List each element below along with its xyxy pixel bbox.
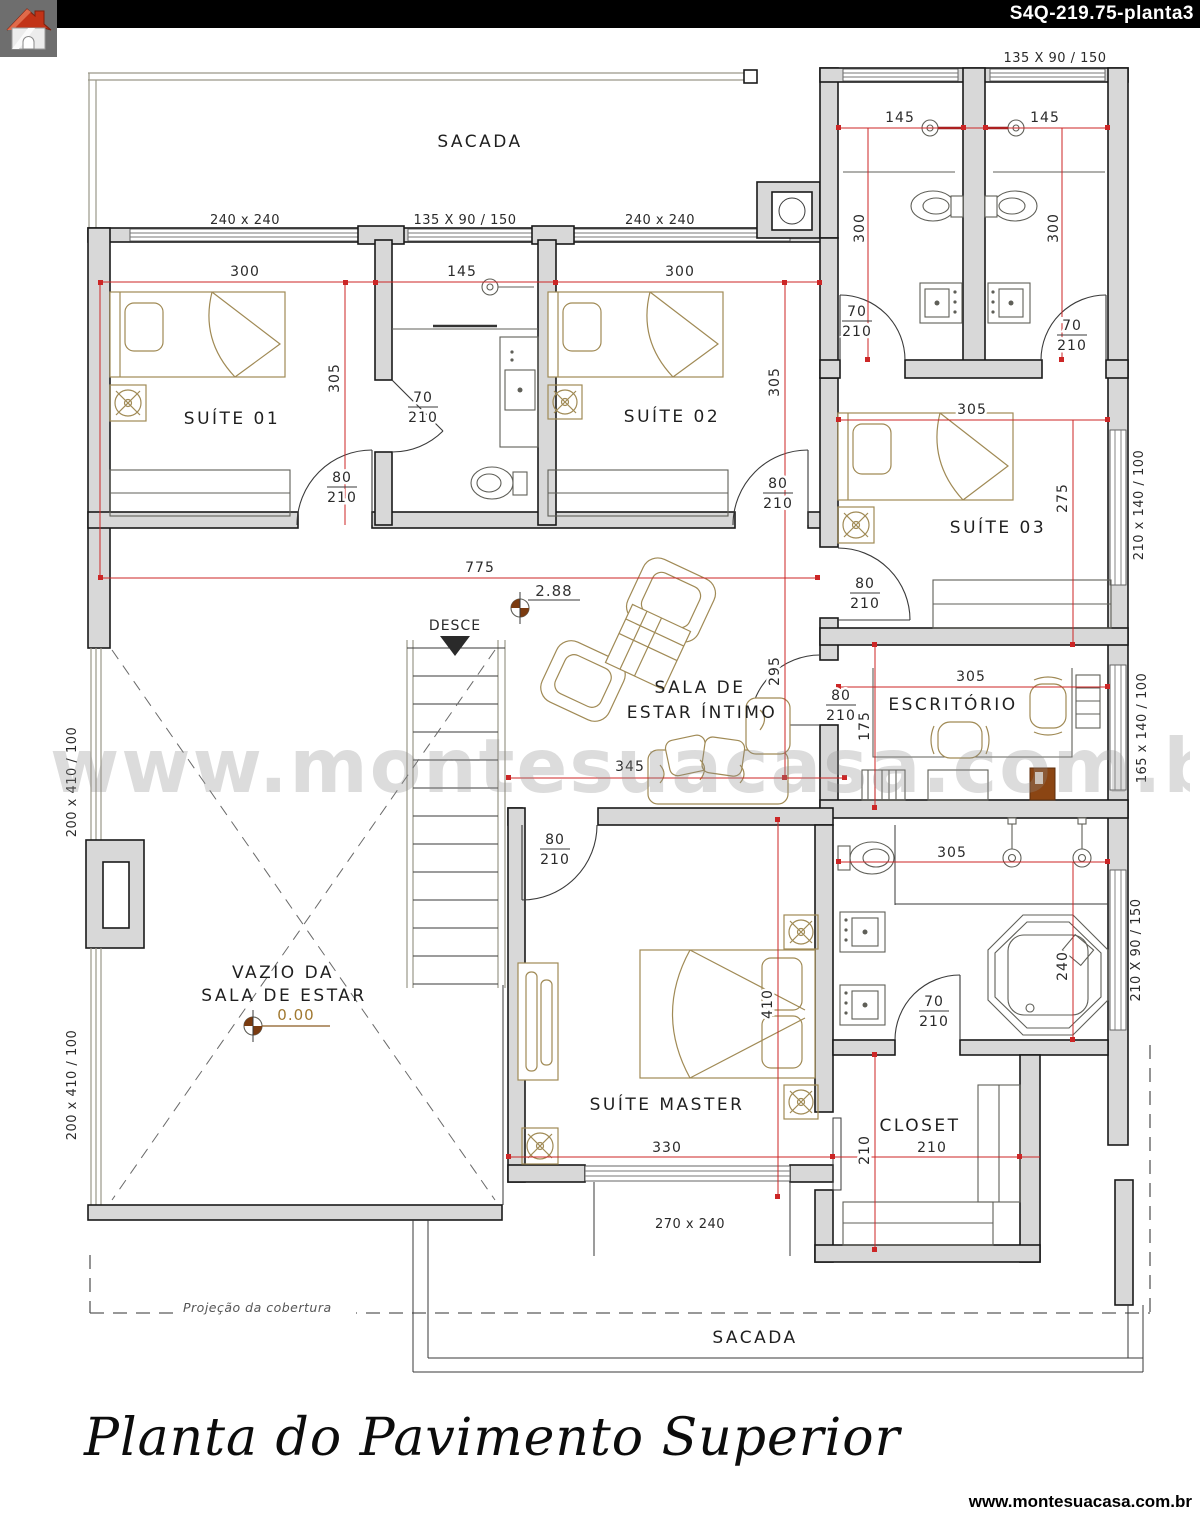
dim-closet-depth: 210 [857,1135,873,1165]
window-spec-wc-top: 135 X 90 / 150 [1004,51,1107,66]
svg-text:80: 80 [545,832,565,848]
lower-level-value: 0.00 [277,1006,314,1024]
room-label-balcony-top: SACADA [437,132,522,152]
svg-text:210: 210 [850,596,880,612]
dim-wc2-width: 145 [1030,110,1060,126]
svg-text:70: 70 [413,390,433,406]
room-label-void-1: VAZIO DA [232,963,334,983]
dim-wc1-width: 145 [885,110,915,126]
upper-level-value: 2.88 [535,582,572,600]
door-label-suite3: 80210 [850,576,880,612]
dim-suite3-depth: 275 [1055,483,1071,513]
window-spec-top-right: 240 x 240 [625,213,695,228]
roof-projection-label: Projeção da cobertura [183,1300,332,1315]
door-label-suite2: 80210 [763,476,793,512]
level-marker-upper: 2.88 [511,582,580,624]
window-spec-master-bath: 210 X 90 / 150 [1129,899,1144,1002]
svg-text:70: 70 [1062,318,1082,334]
room-label-suite2: SUÍTE 02 [624,405,720,427]
office-furniture [862,668,1100,800]
dim-suite2-width: 300 [665,264,695,280]
window-spec-suite3: 210 x 140 / 100 [1132,450,1147,561]
dim-master-width: 330 [652,1140,682,1156]
dim-closet-width: 210 [917,1140,947,1156]
dim-suite3-width: 305 [957,402,987,418]
dim-living-depth: 295 [767,656,783,686]
site-url[interactable]: www.montesuacasa.com.br [969,1492,1192,1512]
dim-suite2-depth: 305 [767,367,783,397]
svg-text:210: 210 [919,1014,949,1030]
svg-text:80: 80 [831,688,851,704]
room-label-suite1: SUÍTE 01 [184,407,280,429]
master-bath-fixtures [838,818,1108,1035]
window-spec-top-center: 135 X 90 / 150 [414,213,517,228]
dim-wc1-depth: 300 [852,213,868,243]
svg-text:210: 210 [1057,338,1087,354]
floor-plan-drawing: DESCE Projeção da cobertura [0,0,1200,1527]
level-marker-lower: 0.00 [244,1006,330,1042]
dim-hall-span: 775 [465,560,495,576]
stairs-down-arrow-icon [440,636,470,656]
window-spec-void-lower: 200 x 410 / 100 [65,1030,80,1141]
stairs: DESCE [407,618,505,988]
dim-office-depth: 175 [857,711,873,741]
dim-suite1-depth: 305 [327,363,343,393]
dim-wc2-depth: 300 [1046,213,1062,243]
master-wardrobe-icon [518,963,558,1080]
wc2-fixtures [985,120,1105,323]
room-label-office: ESCRITÓRIO [888,693,1017,715]
dim-master-bath-depth: 240 [1055,951,1071,981]
suite3-bed-icon [838,413,1013,500]
room-label-master: SUÍTE MASTER [590,1093,745,1115]
balcony-top-rail [88,70,757,230]
svg-text:70: 70 [847,304,867,320]
dim-master-bath-width: 305 [937,845,967,861]
door-label-office: 80210 [826,688,856,724]
floor-plan-page: S4Q-219.75-planta3 [0,0,1200,1527]
dim-sofa-span: 345 [615,759,645,775]
plan-title: Planta do Pavimento Superior [84,1408,900,1468]
room-label-living-2: ESTAR ÍNTIMO [627,701,778,723]
room-label-suite3: SUÍTE 03 [950,516,1046,538]
door-label-suite1: 80210 [327,470,357,506]
svg-text:210: 210 [327,490,357,506]
room-label-balcony-bottom: SACADA [712,1328,797,1348]
svg-text:70: 70 [924,994,944,1010]
suite1-bed-icon [110,292,285,377]
window-spec-void-upper: 200 x 410 / 100 [65,727,80,838]
svg-text:80: 80 [855,576,875,592]
svg-text:80: 80 [332,470,352,486]
door-label-master-bath: 70210 [919,994,949,1030]
svg-text:210: 210 [408,410,438,426]
mid-bath-fixtures [392,279,538,499]
master-bed-icon [640,950,815,1078]
svg-text:80: 80 [768,476,788,492]
door-label-mid-bath: 70210 [408,390,438,426]
window-spec-master-bottom: 270 x 240 [655,1217,725,1232]
dim-master-depth: 410 [760,989,776,1019]
svg-text:210: 210 [540,852,570,868]
void-area [112,650,495,1200]
door-label-master: 80210 [540,832,570,868]
dim-office-width: 305 [956,669,986,685]
dim-suite1-width: 300 [230,264,260,280]
room-label-closet: CLOSET [879,1116,960,1136]
dim-mid-bath-width: 145 [447,264,477,280]
suite2-bed-icon [548,292,723,377]
room-label-living-1: SALA DE [655,678,746,698]
svg-text:210: 210 [763,496,793,512]
stairs-direction-label: DESCE [429,618,481,634]
window-spec-top-left: 240 x 240 [210,213,280,228]
svg-text:210: 210 [826,708,856,724]
svg-text:210: 210 [842,324,872,340]
room-label-void-2: SALA DE ESTAR [201,986,366,1006]
window-spec-office: 165 x 140 / 100 [1135,673,1150,784]
